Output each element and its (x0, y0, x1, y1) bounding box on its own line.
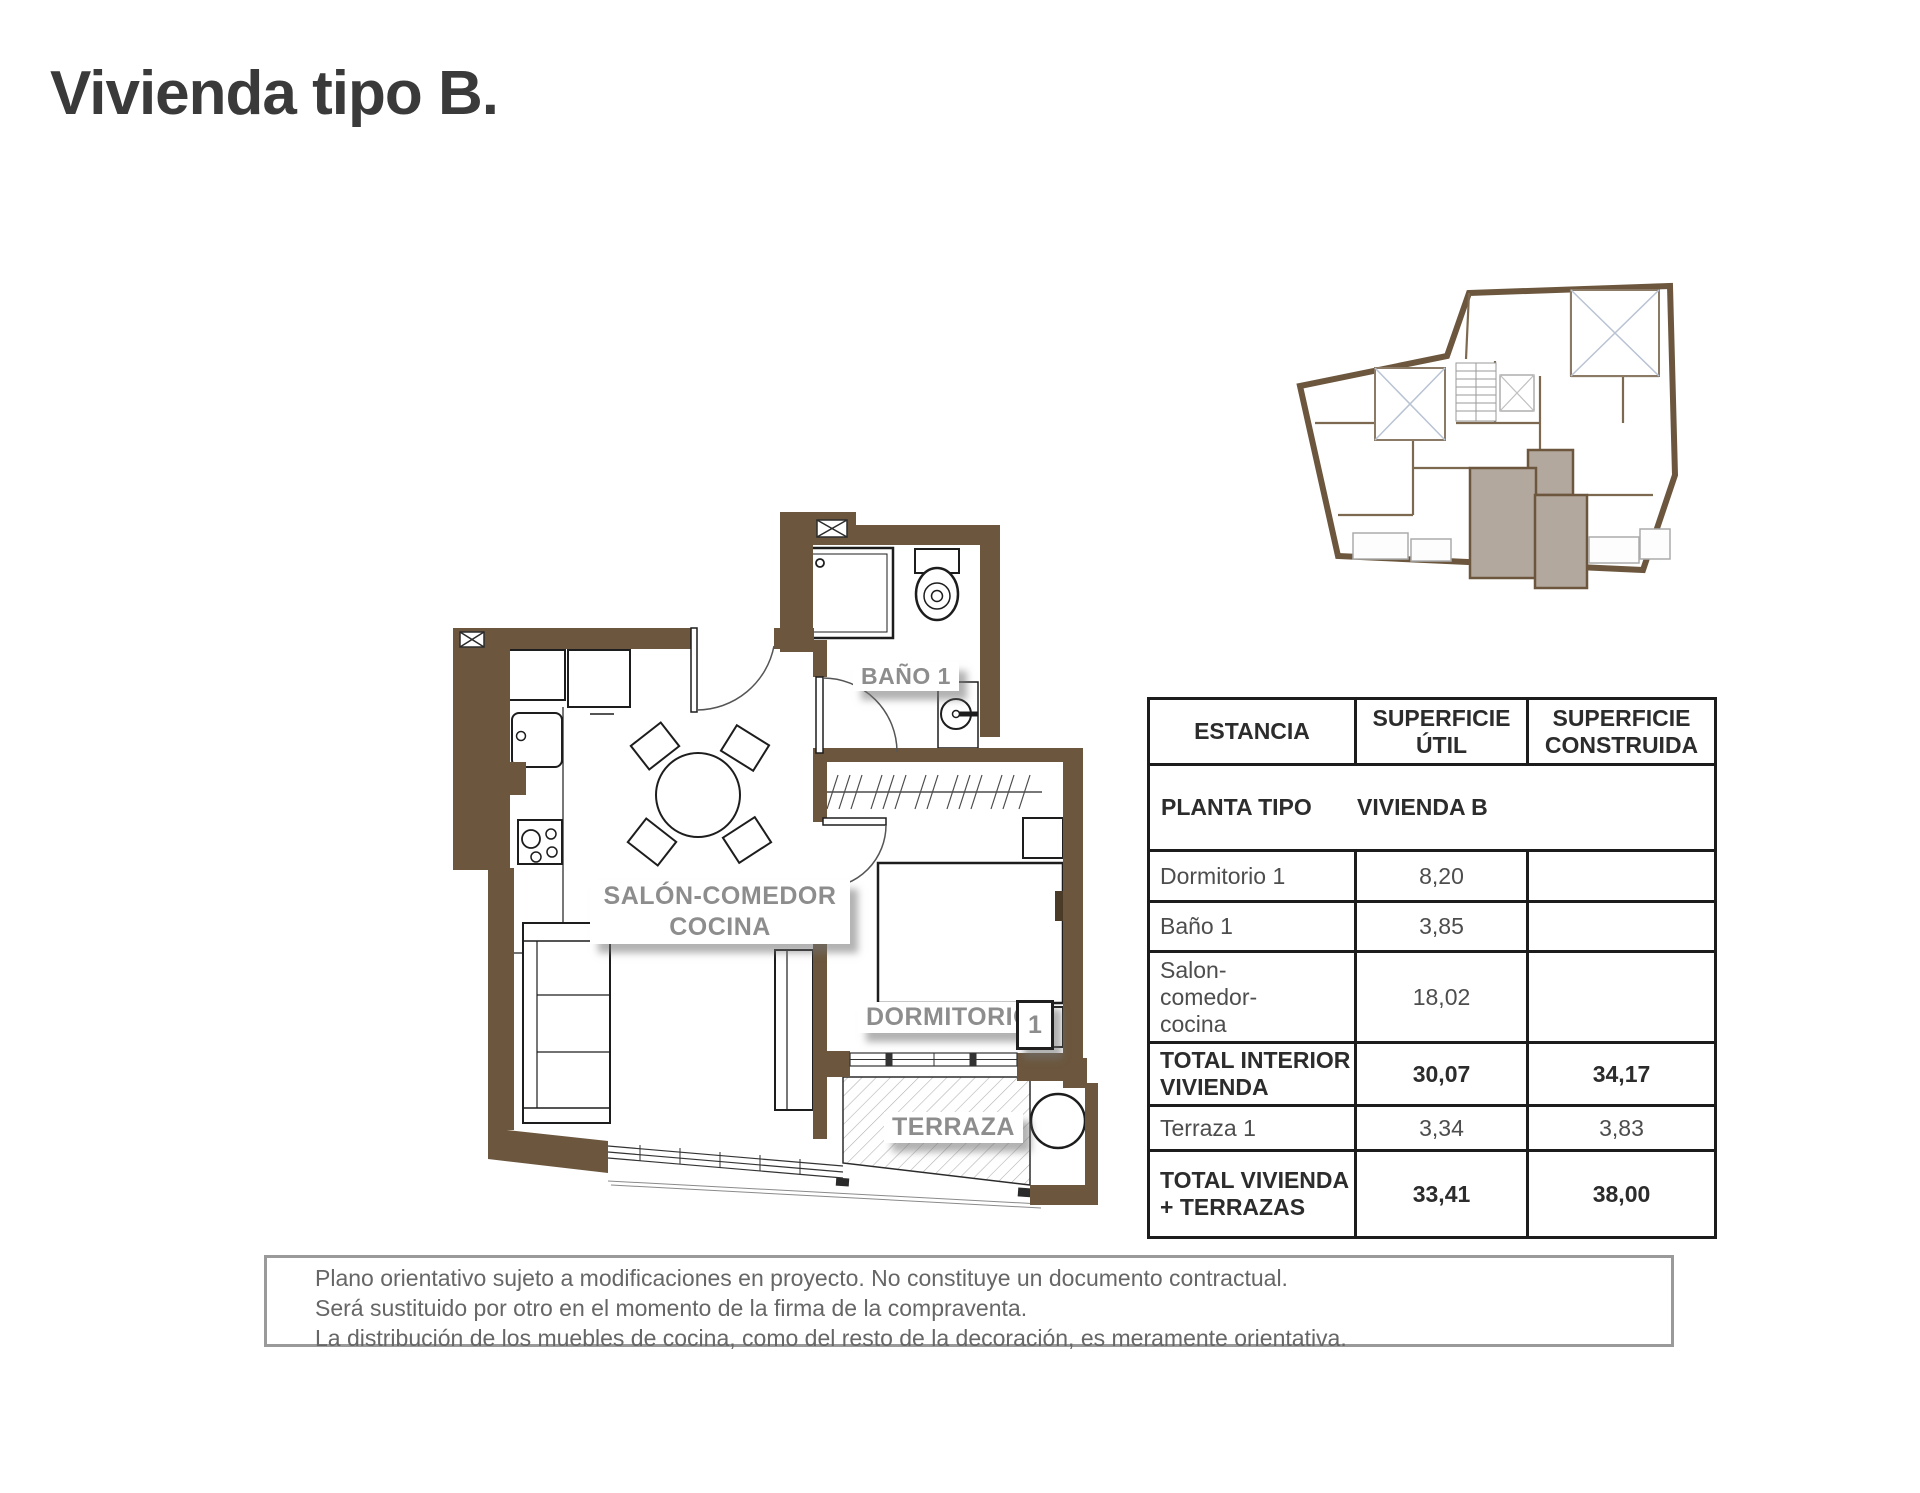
dining-table (628, 722, 771, 865)
built-value (1528, 952, 1716, 1043)
wardrobe (825, 775, 1042, 809)
table-row: Salon- comedor- cocina 18,02 (1149, 952, 1716, 1043)
table-total-row: TOTAL INTERIOR VIVIENDA 30,07 34,17 (1149, 1043, 1716, 1106)
living-room-window (608, 1145, 843, 1178)
built-value (1528, 851, 1716, 902)
room-name: TOTAL VIVIENDA + TERRAZAS (1149, 1151, 1356, 1238)
staircase-icon (1456, 363, 1496, 421)
table-subheader-row: PLANTA TIPO VIVIENDA B (1149, 765, 1716, 851)
bedroom-door (823, 818, 886, 888)
util-value: 3,85 (1356, 902, 1528, 952)
bedroom-window (850, 1053, 1017, 1066)
bathroom-label: BAÑO 1 (853, 662, 959, 691)
built-value: 34,17 (1528, 1043, 1716, 1106)
table-total-row: TOTAL VIVIENDA + TERRAZAS 33,41 38,00 (1149, 1151, 1716, 1238)
table-row: Dormitorio 1 8,20 (1149, 851, 1716, 902)
terrace-table (1031, 1094, 1085, 1148)
shower (805, 548, 893, 638)
key-plan (1293, 263, 1703, 593)
balcony-edge (608, 1181, 1041, 1208)
washbasin (938, 682, 978, 748)
built-value (1528, 902, 1716, 952)
bedroom-number-badge: 1 (1016, 1000, 1054, 1050)
room-name: Dormitorio 1 (1149, 851, 1356, 902)
toilet (915, 549, 959, 620)
disclaimer-line: Será sustituido por otro en el momento d… (315, 1293, 1671, 1323)
table-row: Baño 1 3,85 (1149, 902, 1716, 952)
bedroom-label: DORMITORIO (858, 1002, 1041, 1033)
room-name: Terraza 1 (1149, 1106, 1356, 1151)
bed (878, 863, 1063, 1003)
document-page: Vivienda tipo B. (0, 0, 1920, 1493)
cabinet (775, 950, 813, 1110)
vivienda-b-label: VIVIENDA B (1357, 794, 1488, 821)
util-value: 30,07 (1356, 1043, 1528, 1106)
disclaimer-box: Plano orientativo sujeto a modificacione… (264, 1255, 1674, 1347)
header-estancia: ESTANCIA (1149, 699, 1356, 765)
terrace-label: TERRAZA (884, 1112, 1023, 1143)
room-name: Salon- comedor- cocina (1149, 952, 1356, 1043)
nightstand (1023, 818, 1063, 858)
elevator-icon (1500, 375, 1534, 411)
built-value: 3,83 (1528, 1106, 1716, 1151)
header-superficie-construida: SUPERFICIE CONSTRUIDA (1528, 699, 1716, 765)
surfaces-table: ESTANCIA SUPERFICIE ÚTIL SUPERFICIE CONS… (1147, 697, 1717, 1239)
column-marker (836, 1178, 850, 1187)
disclaimer-line: Plano orientativo sujeto a modificacione… (315, 1263, 1671, 1293)
planta-tipo-label: PLANTA TIPO (1151, 794, 1357, 821)
page-title: Vivienda tipo B. (50, 58, 498, 129)
room-name: Baño 1 (1149, 902, 1356, 952)
util-value: 18,02 (1356, 952, 1528, 1043)
util-value: 8,20 (1356, 851, 1528, 902)
util-value: 3,34 (1356, 1106, 1528, 1151)
sofa (523, 923, 610, 1123)
header-superficie-util: SUPERFICIE ÚTIL (1356, 699, 1528, 765)
table-row: Terraza 1 3,34 3,83 (1149, 1106, 1716, 1151)
util-value: 33,41 (1356, 1151, 1528, 1238)
built-value: 38,00 (1528, 1151, 1716, 1238)
room-name: TOTAL INTERIOR VIVIENDA (1149, 1043, 1356, 1106)
disclaimer-line: La distribución de los muebles de cocina… (315, 1323, 1671, 1353)
entrance-door (691, 628, 774, 712)
unit-highlight (1470, 450, 1587, 588)
living-room-label: SALÓN-COMEDOR COCINA (590, 880, 850, 944)
table-header-row: ESTANCIA SUPERFICIE ÚTIL SUPERFICIE CONS… (1149, 699, 1716, 765)
